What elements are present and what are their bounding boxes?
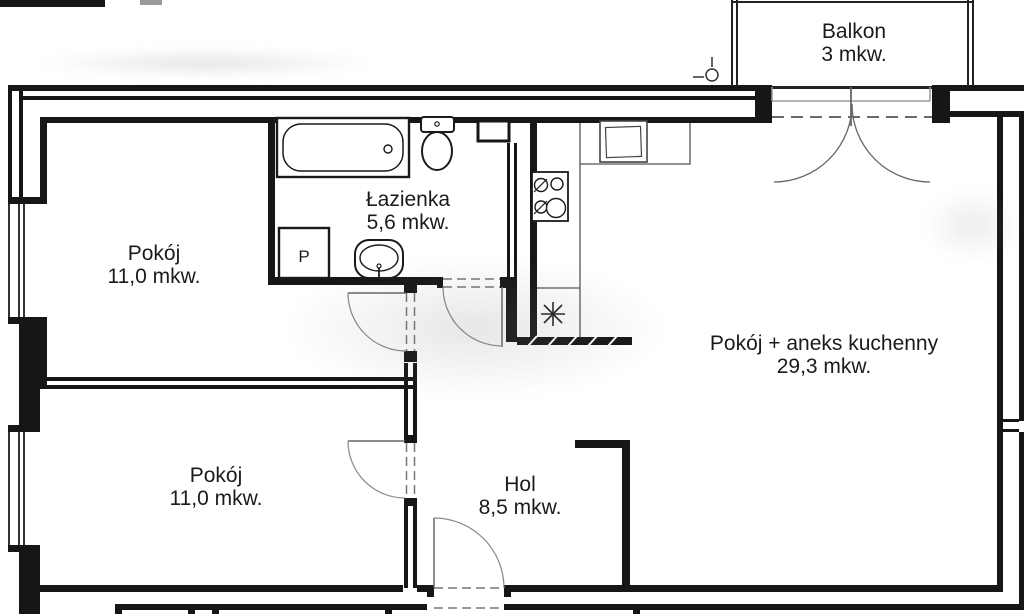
kitchen-sink-icon <box>600 121 647 162</box>
floor-plan: P <box>0 0 1024 614</box>
window-lower-left <box>8 425 40 552</box>
room-label-pokoj-dolny: Pokój 11,0 mkw. <box>170 464 263 510</box>
room-label-hol: Hol 8,5 mkw. <box>479 473 562 519</box>
drain-star-symbol <box>541 302 565 326</box>
door-entrance <box>434 518 504 608</box>
room-area: 3 mkw. <box>821 43 886 66</box>
kitchen-peninsula-hatched <box>517 336 632 346</box>
room-name: Łazienka <box>366 188 450 211</box>
room-area: 29,3 mkw. <box>710 355 938 378</box>
bathtub-icon <box>277 118 409 177</box>
balcony-door <box>772 86 932 182</box>
washing-machine-icon: P <box>279 228 329 278</box>
washbasin-icon <box>355 240 403 278</box>
cropped-plan-fragment-top <box>0 0 162 7</box>
door-room-upper <box>348 293 415 351</box>
room-area: 11,0 mkw. <box>108 265 201 288</box>
washing-machine-label: P <box>298 247 309 266</box>
vent-symbol <box>693 57 718 81</box>
room-name: Balkon <box>821 20 886 43</box>
shaft <box>478 121 509 141</box>
room-name: Pokój <box>108 242 201 265</box>
room-name: Pokój + aneks kuchenny <box>710 332 938 355</box>
room-area: 5,6 mkw. <box>366 211 450 234</box>
room-label-balkon: Balkon 3 mkw. <box>821 20 886 66</box>
room-label-lazienka: Łazienka 5,6 mkw. <box>366 188 450 234</box>
stove-icon <box>532 172 568 221</box>
room-label-pokoj-aneks: Pokój + aneks kuchenny 29,3 mkw. <box>710 332 938 378</box>
room-area: 8,5 mkw. <box>479 496 562 519</box>
toilet-icon <box>421 117 454 170</box>
door-bathroom <box>443 279 502 347</box>
room-label-pokoj-gorny: Pokój 11,0 mkw. <box>108 242 201 288</box>
room-name: Hol <box>479 473 562 496</box>
room-area: 11,0 mkw. <box>170 487 263 510</box>
room-name: Pokój <box>170 464 263 487</box>
window-upper-left <box>8 197 47 324</box>
door-room-lower <box>348 441 415 498</box>
floor-plan-drawing: P <box>0 0 1024 614</box>
